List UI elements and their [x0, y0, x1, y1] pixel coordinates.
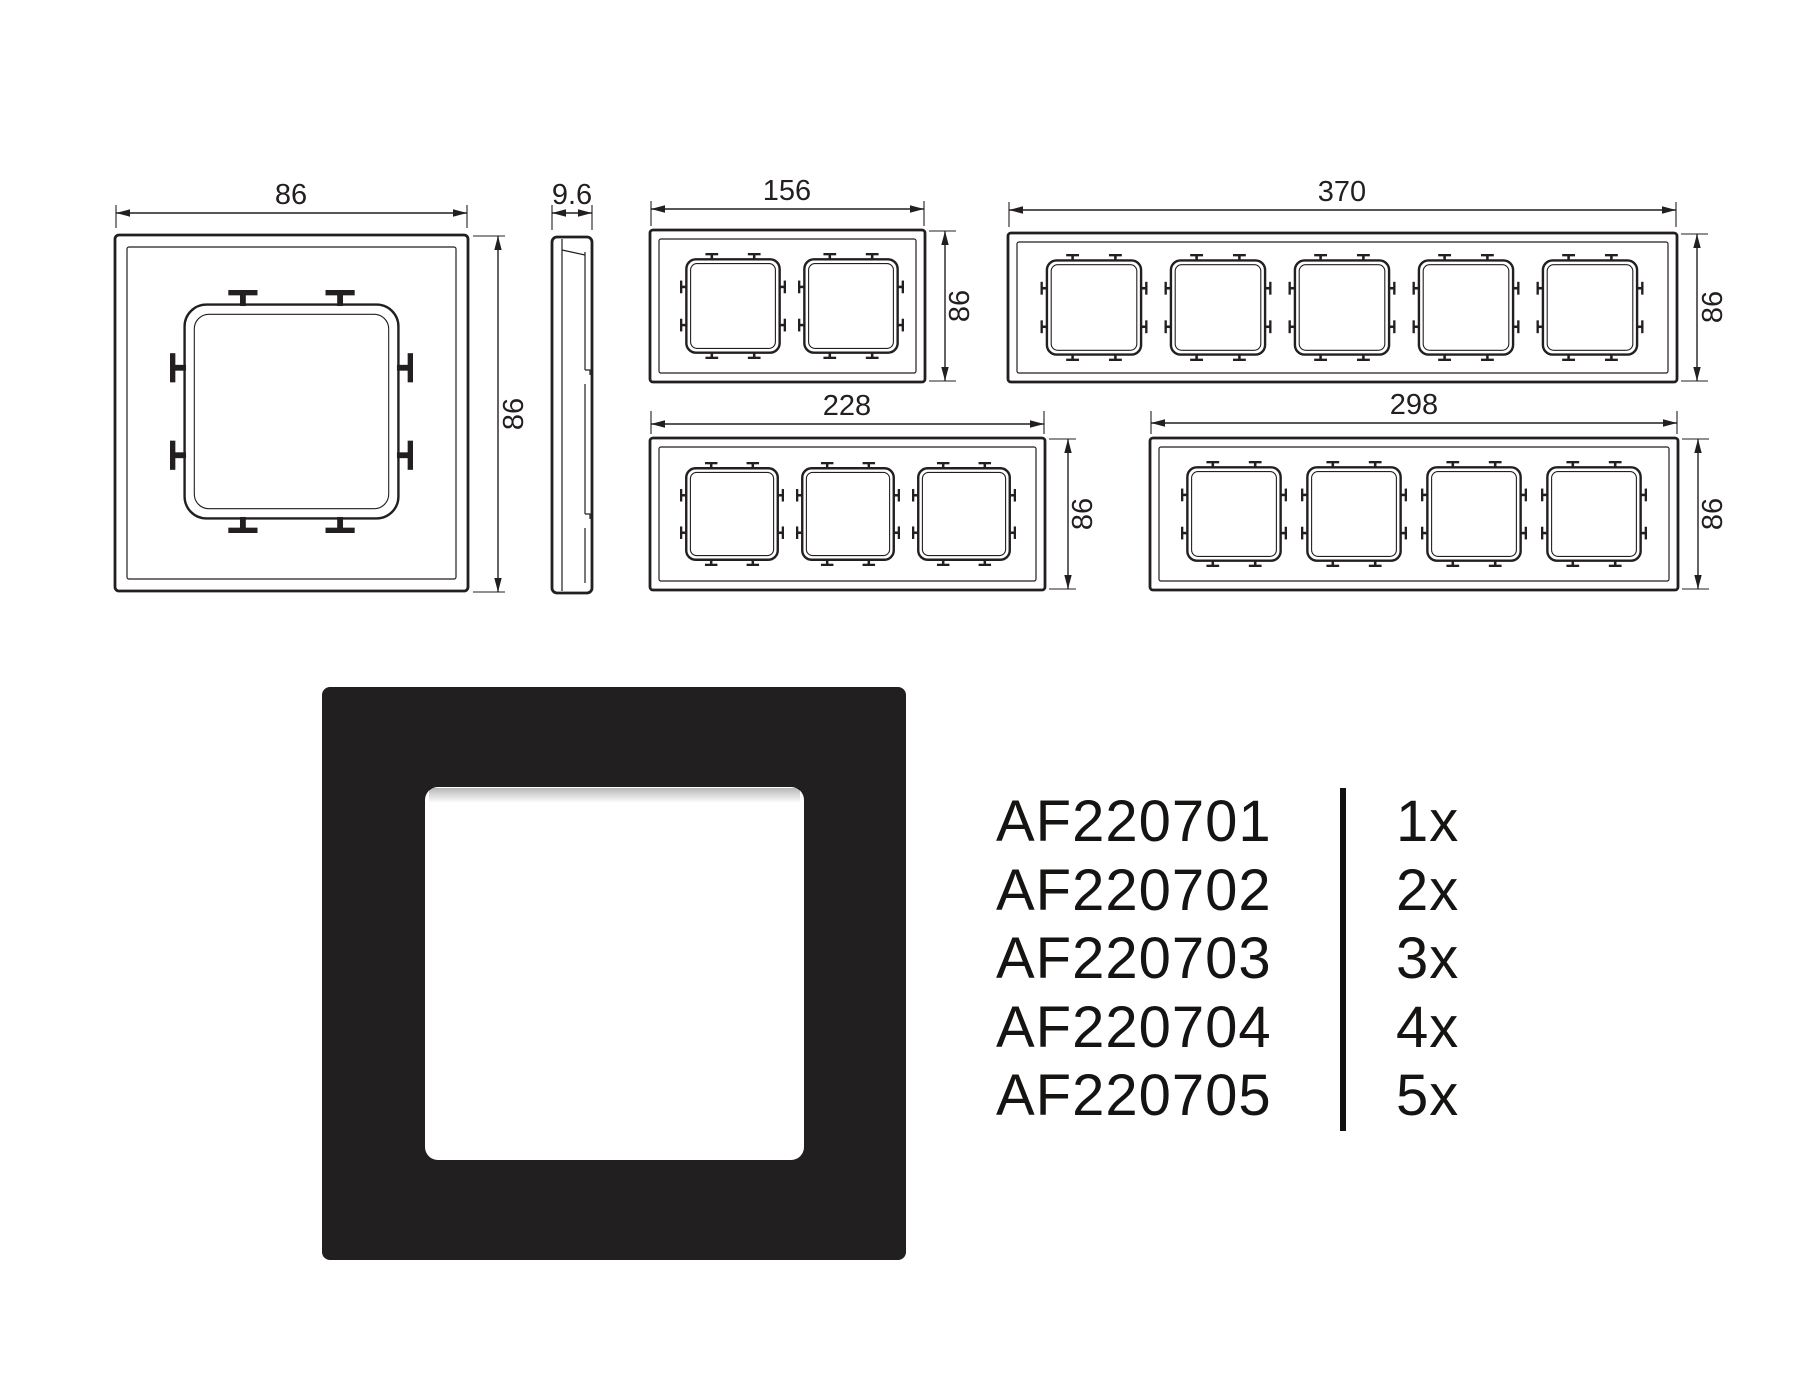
- frame-outline: [1008, 233, 1677, 382]
- three-gang-frame-view: 228 86: [650, 390, 1099, 590]
- frame-aperture: [1041, 254, 1148, 361]
- product-code: AF220704: [996, 994, 1340, 1063]
- technical-drawings: 86 86 9.6 156 8: [0, 0, 1800, 660]
- side-profile-view: 9.6: [552, 179, 592, 593]
- dimension-label: 9.6: [552, 179, 592, 211]
- frame-aperture: [1301, 461, 1407, 567]
- dimension-label: 86: [1697, 291, 1729, 323]
- dimension-width: 228: [651, 390, 1044, 434]
- dimension-label: 370: [1318, 176, 1366, 208]
- dimension-height: 86: [473, 236, 530, 592]
- four-gang-frame-view: 298 86: [1150, 389, 1729, 590]
- frame-aperture: [680, 253, 786, 359]
- frame-aperture: [796, 462, 900, 566]
- frame-aperture: [680, 462, 784, 566]
- gang-count: 1x: [1396, 788, 1516, 857]
- frame-aperture: [1289, 254, 1396, 361]
- dimension-label: 298: [1390, 389, 1438, 421]
- dimension-label: 86: [1067, 498, 1099, 530]
- frame-outline: [650, 438, 1045, 590]
- frame-aperture: [170, 290, 413, 533]
- profile-outline: [552, 237, 592, 593]
- frame-inner-line: [1017, 242, 1668, 373]
- frame-window: [425, 787, 804, 1160]
- product-photo-black-frame: [322, 687, 906, 1263]
- dimension-label: 86: [498, 398, 530, 430]
- dimension-label: 86: [944, 290, 976, 322]
- frame-aperture: [912, 462, 1016, 566]
- frame-outline: [1150, 438, 1678, 590]
- product-code: AF220702: [996, 857, 1340, 926]
- profile-step-line: [562, 250, 585, 255]
- dimension-label: 156: [763, 175, 811, 207]
- dimension-label: 86: [275, 179, 307, 211]
- dimension-label: 86: [1697, 498, 1729, 530]
- product-code: AF220703: [996, 925, 1340, 994]
- dimension-depth: 9.6: [552, 179, 592, 230]
- frame-outline: [115, 235, 468, 591]
- frame-aperture: [798, 253, 904, 359]
- dimension-width: 86: [116, 179, 467, 228]
- part-codes-column: AF220701 AF220702 AF220703 AF220704 AF22…: [996, 788, 1340, 1131]
- gang-count: 4x: [1396, 994, 1516, 1063]
- five-gang-frame-view: 370 86: [1008, 176, 1729, 382]
- dimension-label: 228: [823, 390, 871, 422]
- frame-outline: [650, 230, 925, 382]
- dimension-width: 298: [1151, 389, 1677, 434]
- part-list: AF220701 AF220702 AF220703 AF220704 AF22…: [996, 788, 1516, 1131]
- dimension-height: 86: [929, 231, 976, 381]
- frame-aperture: [1421, 461, 1527, 567]
- gang-count: 2x: [1396, 857, 1516, 926]
- dimension-height: 86: [1049, 439, 1099, 589]
- part-list-divider: [1340, 788, 1346, 1131]
- two-gang-frame-view: 156 86: [650, 175, 976, 382]
- single-frame-front-view: 86 86: [115, 179, 530, 592]
- window-top-shadow: [429, 788, 800, 803]
- dimension-height: 86: [1681, 234, 1729, 381]
- part-qty-column: 1x 2x 3x 4x 5x: [1396, 788, 1516, 1131]
- frame-aperture: [1181, 461, 1287, 567]
- frame-inner-line: [127, 247, 456, 579]
- frame-aperture: [1541, 461, 1647, 567]
- frame-aperture: [1165, 254, 1272, 361]
- dimension-width: 156: [651, 175, 924, 226]
- frame-aperture: [1413, 254, 1520, 361]
- dimension-width: 370: [1009, 176, 1676, 227]
- product-code: AF220701: [996, 788, 1340, 857]
- product-code: AF220705: [996, 1062, 1340, 1131]
- gang-count: 5x: [1396, 1062, 1516, 1131]
- profile-clip-hooks: [585, 370, 590, 519]
- dimension-height: 86: [1682, 439, 1729, 589]
- frame-aperture: [1537, 254, 1644, 361]
- gang-count: 3x: [1396, 925, 1516, 994]
